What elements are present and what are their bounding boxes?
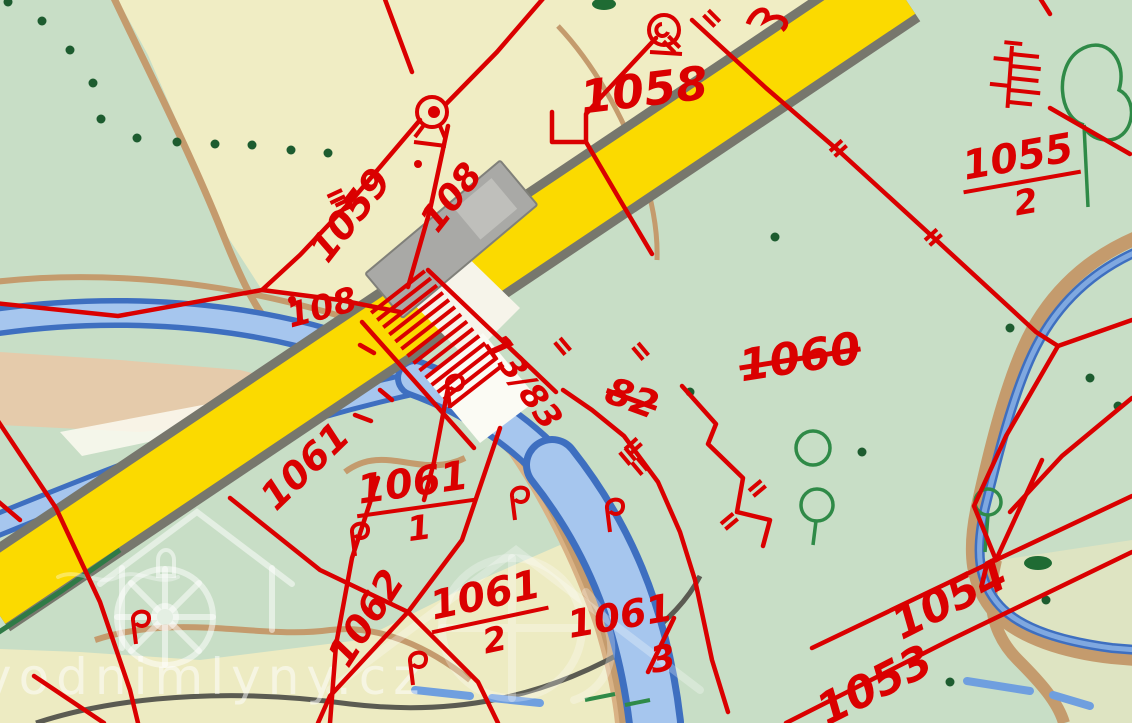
parcel-label-1061-1: 1061 1	[351, 455, 481, 557]
bridge-hatching	[371, 271, 503, 406]
squiggle-symbol-icon	[748, 10, 786, 30]
weir-comb-icon	[988, 41, 1046, 111]
parcel-label-1058: 1058	[578, 59, 711, 120]
map-viewport[interactable]: vodnimlyny.cz	[0, 0, 1132, 723]
